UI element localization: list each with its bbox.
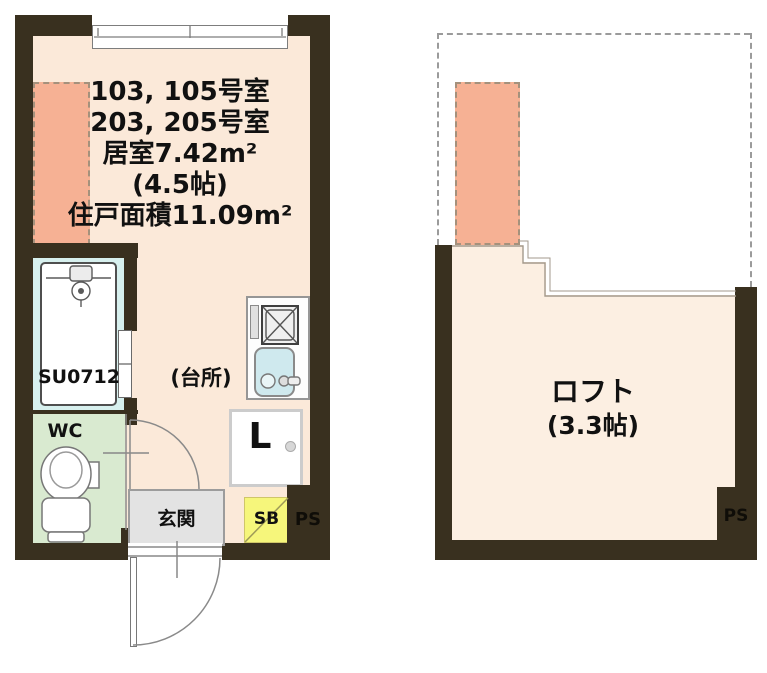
- laundry-label: L: [240, 416, 280, 457]
- loft-ladder-area-right: [455, 82, 520, 245]
- sink-icon: [254, 347, 295, 397]
- loft-footprint-outline-top: [437, 33, 750, 35]
- unit-info-line-rooms-2f: 203, 205号室: [35, 108, 325, 139]
- kitchen-side-panel: [250, 305, 259, 339]
- entrance-threshold: [128, 543, 222, 560]
- unit-info-line-rooms-1f: 103, 105号室: [35, 77, 325, 108]
- loft-footprint-outline-right: [750, 33, 752, 287]
- unit-info-line-room-area: 居室7.42m²: [35, 139, 325, 170]
- window-icon: [92, 25, 288, 49]
- entrance-door-leaf: [130, 557, 137, 647]
- shoe-box-label: SB: [244, 509, 289, 529]
- kitchen-label: (台所): [158, 362, 244, 392]
- unit-info-line-total-area: 住戸面積11.09m²: [35, 201, 325, 232]
- entrance-door-arc: [133, 558, 220, 645]
- laundry-knob-icon: [285, 441, 296, 452]
- bath-unit-label: SU0712: [38, 366, 118, 388]
- loft-wall-bottom: [435, 540, 757, 560]
- loft-footprint-outline-left: [437, 33, 439, 245]
- bath-wall-top: [33, 243, 138, 258]
- pipe-space-left-label: PS: [288, 509, 328, 530]
- loft-size-label: (3.3帖): [480, 406, 706, 442]
- stove-icon: [261, 305, 299, 345]
- pipe-space-right-label: PS: [716, 506, 756, 526]
- entrance-label: 玄関: [128, 504, 225, 531]
- unit-info-text: 103, 105号室 203, 205号室 居室7.42m² (4.5帖) 住戸…: [35, 77, 325, 232]
- unit-info-line-tatami: (4.5帖): [35, 170, 325, 201]
- loft-name-label: ロフト: [480, 370, 706, 410]
- wc-label: WC: [44, 420, 86, 442]
- floorplan-canvas: 103, 105号室 203, 205号室 居室7.42m² (4.5帖) 住戸…: [0, 0, 767, 673]
- bath-wall-right-upper: [124, 243, 137, 331]
- loft-wall-left: [435, 245, 452, 560]
- bathroom-door: [118, 330, 132, 398]
